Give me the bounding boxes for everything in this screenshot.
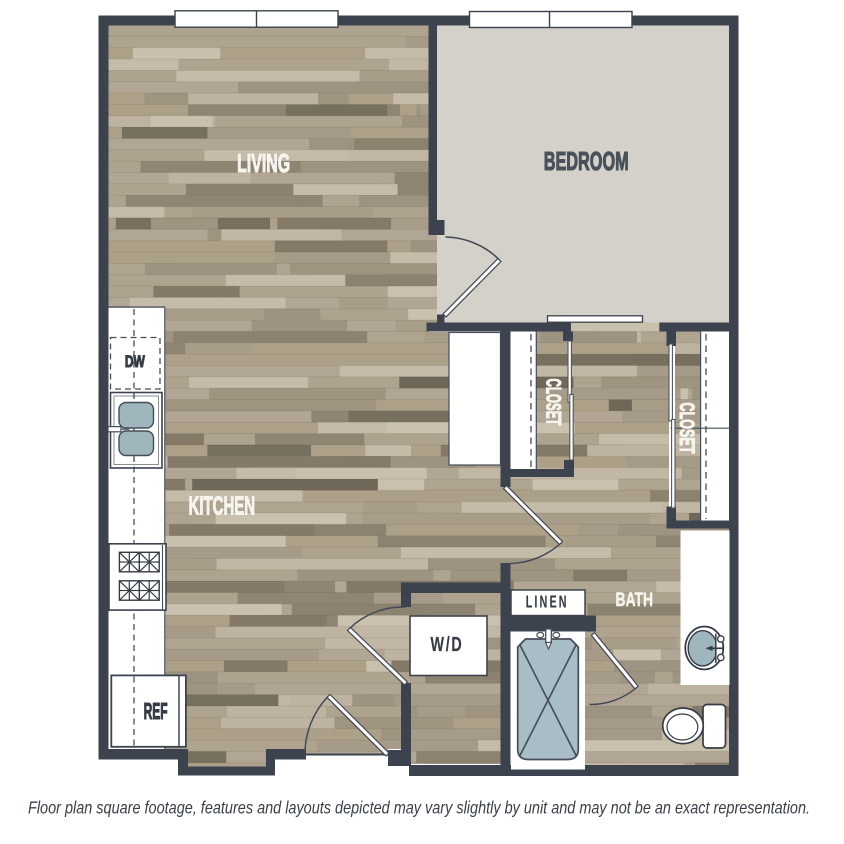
svg-text:LIVING: LIVING [237, 148, 290, 178]
svg-text:W/D: W/D [431, 633, 464, 656]
svg-text:REF: REF [144, 698, 168, 724]
svg-text:LINEN: LINEN [526, 592, 569, 612]
svg-text:KITCHEN: KITCHEN [189, 491, 256, 521]
svg-text:BEDROOM: BEDROOM [544, 146, 629, 176]
svg-text:CLOSET: CLOSET [675, 403, 698, 454]
svg-text:CLOSET: CLOSET [542, 379, 565, 426]
svg-text:DW: DW [125, 352, 145, 371]
svg-text:BATH: BATH [616, 590, 654, 611]
svg-text:Floor plan square footage, fea: Floor plan square footage, features and … [28, 798, 810, 818]
